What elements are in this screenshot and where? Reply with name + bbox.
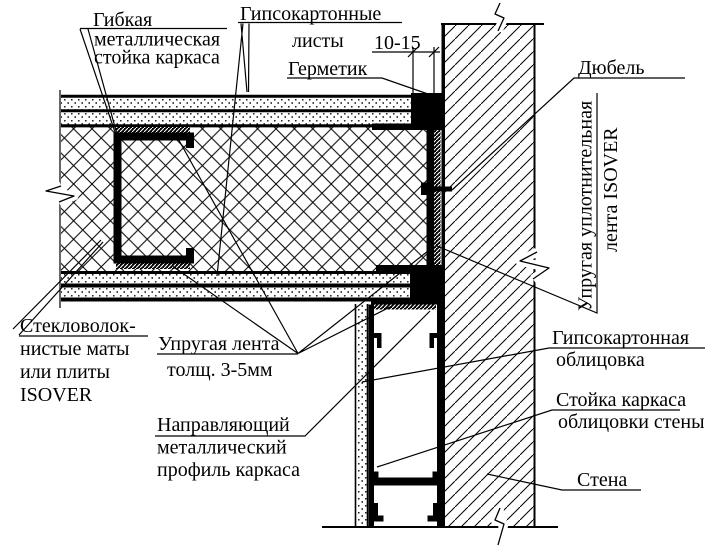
wall-cladding <box>356 299 444 527</box>
label-cladding-stud-2: облицовки стены <box>558 411 705 433</box>
label-glass-mats-1: Стекловолок- <box>20 315 136 337</box>
label-cladding-stud-1: Стойка каркаса <box>556 389 686 411</box>
label-flexible-stud-3: стойка каркаса <box>94 47 220 69</box>
cladding-stud-right-line <box>437 305 443 528</box>
sealant-top <box>411 93 442 124</box>
cladding-elastic-tape <box>374 305 436 310</box>
cladding-channel-bar <box>371 299 443 305</box>
elastic-tape-top <box>116 127 190 133</box>
gypsum-cladding-board <box>356 304 368 527</box>
label-gypsum-cladding-1: Гипсокартонная <box>552 327 689 349</box>
wall-hatch <box>445 25 534 527</box>
elastic-tape-bottom <box>116 264 190 270</box>
label-dowel: Дюбель <box>578 57 644 79</box>
wall-top-edge <box>441 23 544 25</box>
drawing-canvas: Гибкая металлическая стойка каркаса Гипс… <box>0 0 727 549</box>
label-guide-profile-3: профиль каркаса <box>157 459 300 481</box>
label-glass-mats-4: ISOVER <box>20 384 93 406</box>
leader-sealant <box>287 78 428 94</box>
label-glass-mats-3: или плиты <box>20 361 110 383</box>
partition-section <box>60 90 427 308</box>
label-gypsum-sheets-1: Гипсокартонные <box>240 3 381 25</box>
label-guide-profile-2: металлический <box>157 437 287 459</box>
label-wall: Стена <box>577 469 627 491</box>
gypsum-boards-bottom <box>61 273 410 300</box>
sealant-bottom <box>410 272 442 301</box>
label-isover-tape-2: лента ISOVER <box>600 127 622 252</box>
label-gypsum-sheets-2: листы <box>292 30 344 52</box>
label-elastic-tape-2: толщ. 3-5мм <box>167 359 273 381</box>
isover-sealing-tape <box>434 130 441 265</box>
label-dimension-value: 10-15 <box>374 32 421 54</box>
label-guide-profile-1: Направляющий <box>157 414 290 436</box>
cladding-stud-cross-section <box>369 472 443 522</box>
label-elastic-tape-1: Упругая лента <box>158 333 280 355</box>
junction-profile-web <box>427 128 435 267</box>
cladding-stud-left-line <box>369 305 375 528</box>
label-sealant: Герметик <box>288 58 368 80</box>
label-glass-mats-2: нистые маты <box>20 338 129 360</box>
technical-drawing-partition-wall-junction: Гибкая металлическая стойка каркаса Гипс… <box>0 0 727 549</box>
label-isover-tape-1: Упругая уплотнительная <box>575 101 597 311</box>
label-gypsum-cladding-2: облицовка <box>556 349 645 371</box>
